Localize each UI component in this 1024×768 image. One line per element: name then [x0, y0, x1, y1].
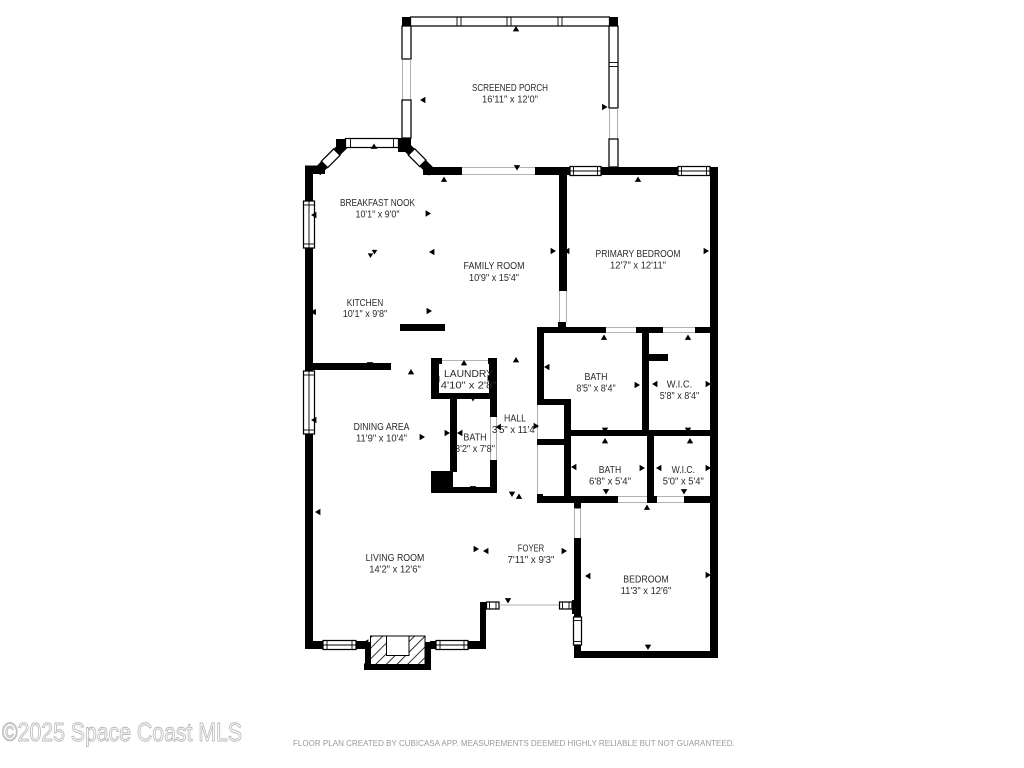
svg-text:8'5" x 8'4": 8'5" x 8'4"	[576, 384, 616, 395]
svg-text:HALL: HALL	[504, 414, 526, 425]
svg-text:6'8" x 5'4": 6'8" x 5'4"	[589, 477, 631, 488]
svg-text:14'2" x 12'6": 14'2" x 12'6"	[369, 565, 421, 576]
svg-text:11'3" x 12'6": 11'3" x 12'6"	[621, 586, 672, 597]
svg-text:W.I.C.: W.I.C.	[672, 465, 695, 476]
svg-text:FOYER: FOYER	[518, 544, 544, 555]
svg-text:PRIMARY BEDROOM: PRIMARY BEDROOM	[596, 249, 681, 260]
svg-text:5'0" x 5'4": 5'0" x 5'4"	[663, 477, 704, 488]
svg-text:10'1" x 9'8": 10'1" x 9'8"	[343, 309, 388, 320]
svg-text:KITCHEN: KITCHEN	[347, 298, 384, 309]
svg-text:LIVING ROOM: LIVING ROOM	[366, 553, 425, 564]
svg-text:BREAKFAST NOOK: BREAKFAST NOOK	[340, 198, 415, 209]
svg-text:W.I.C.: W.I.C.	[667, 380, 692, 391]
svg-text:BATH: BATH	[599, 465, 621, 476]
svg-text:DINING AREA: DINING AREA	[354, 422, 410, 433]
svg-text:©2025 Space Coast MLS: ©2025 Space Coast MLS	[2, 717, 242, 747]
svg-text:BATH: BATH	[463, 433, 486, 444]
svg-text:16'11" x 12'0": 16'11" x 12'0"	[482, 94, 538, 105]
svg-text:12'7" x 12'11": 12'7" x 12'11"	[610, 261, 666, 272]
svg-text:10'9" x 15'4": 10'9" x 15'4"	[469, 273, 519, 284]
svg-text:FAMILY ROOM: FAMILY ROOM	[464, 261, 525, 272]
svg-text:BATH: BATH	[585, 372, 608, 383]
svg-text:5'8" x 8'4": 5'8" x 8'4"	[660, 391, 700, 402]
svg-text:7'11" x 9'3": 7'11" x 9'3"	[508, 555, 555, 566]
svg-text:3'2" x 7'8": 3'2" x 7'8"	[455, 444, 495, 455]
svg-text:10'1" x 9'0": 10'1" x 9'0"	[356, 209, 400, 220]
svg-text:4'10" x 2'8": 4'10" x 2'8"	[441, 381, 497, 392]
svg-text:SCREENED PORCH: SCREENED PORCH	[472, 83, 548, 94]
svg-text:FLOOR PLAN CREATED BY CUBICASA: FLOOR PLAN CREATED BY CUBICASA APP. MEAS…	[293, 739, 735, 748]
svg-text:LAUNDRY: LAUNDRY	[444, 369, 493, 380]
svg-text:11'9" x 10'4": 11'9" x 10'4"	[356, 434, 407, 445]
svg-text:BEDROOM: BEDROOM	[623, 575, 668, 586]
